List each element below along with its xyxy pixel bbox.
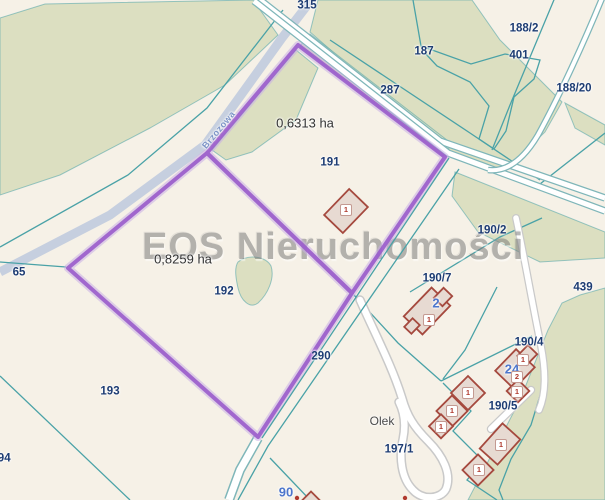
boundary-along-parcel-edge	[262, 158, 449, 438]
selected-parcel-192[interactable]	[68, 153, 352, 437]
selected-parcel-191[interactable]	[207, 45, 445, 293]
selected-parcels-layer	[0, 0, 605, 500]
map-canvas[interactable]: EOS Nieruchomości 315188/2187401287188/2…	[0, 0, 605, 500]
